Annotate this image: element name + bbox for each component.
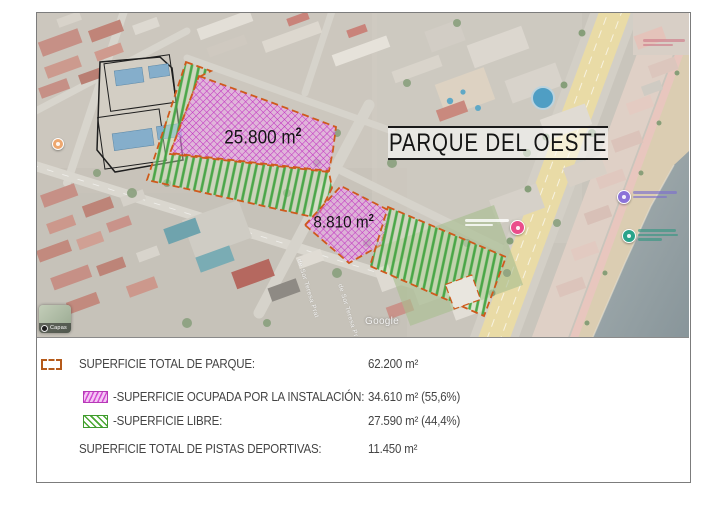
legend-value: 34.610 m² (55,6%) [368, 390, 460, 404]
legend-value: 62.200 m² [368, 357, 418, 371]
figure-frame: PARQUE DEL OESTE 25.800 m2 8.810 m2 de S… [36, 12, 691, 483]
area-label-occupied-main: 25.800 m2 [213, 126, 313, 149]
google-watermark: Google [365, 316, 399, 327]
legend-label: -SUPERFICIE OCUPADA POR LA INSTALACIÓN: [113, 390, 364, 404]
legend-value: 11.450 m² [368, 442, 417, 456]
satellite-map-graphic [37, 13, 689, 337]
legend-label: SUPERFICIE TOTAL DE PISTAS DEPORTIVAS: [79, 442, 321, 456]
area-label-occupied-small: 8.810 m2 [299, 212, 389, 233]
poi-label-topright [643, 39, 685, 48]
free-hatch-icon [83, 415, 108, 428]
poi-label-hotel [465, 219, 509, 228]
satellite-map: PARQUE DEL OESTE 25.800 m2 8.810 m2 de S… [37, 13, 689, 338]
layers-label: Capas [50, 325, 67, 331]
park-boundary-icon [41, 359, 62, 370]
layers-icon [41, 325, 48, 332]
poi-label-teal [638, 229, 678, 243]
layers-control[interactable]: Capas [39, 305, 71, 333]
map-pin-purple-icon[interactable] [617, 190, 631, 204]
map-pin-teal-icon[interactable] [622, 229, 636, 243]
legend-label: SUPERFICIE TOTAL DE PARQUE: [79, 357, 255, 371]
map-pin-orange-icon[interactable] [52, 138, 64, 150]
legend-label: -SUPERFICIE LIBRE: [113, 414, 222, 428]
map-title: PARQUE DEL OESTE [389, 129, 607, 158]
poi-label-purple [633, 191, 677, 200]
map-title-box: PARQUE DEL OESTE [388, 126, 608, 160]
legend-value: 27.590 m² (44,4%) [368, 414, 460, 428]
map-pin-hotel-icon[interactable] [510, 220, 525, 235]
occupied-hatch-icon [83, 391, 108, 403]
planning-figure: PARQUE DEL OESTE 25.800 m2 8.810 m2 de S… [0, 0, 720, 509]
